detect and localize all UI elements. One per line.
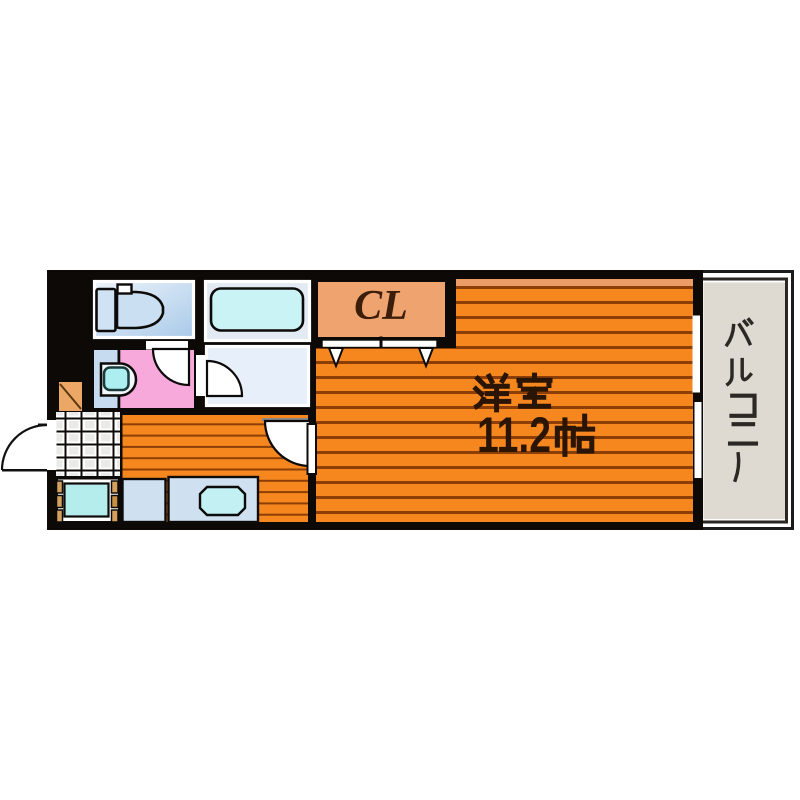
svg-text:CL: CL [354, 283, 408, 329]
svg-text:11.2: 11.2 [477, 407, 551, 463]
